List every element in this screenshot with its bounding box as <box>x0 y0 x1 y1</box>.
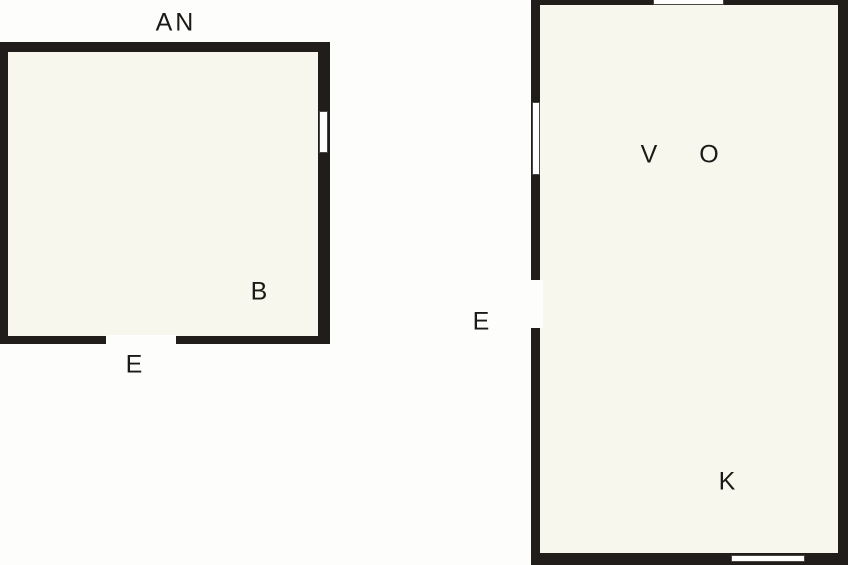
room-an-window-right-wall <box>319 111 328 153</box>
room-an-label-b: B <box>251 280 270 305</box>
room-vok-label-o: O <box>699 143 720 168</box>
room-vok-window-left-wall <box>532 102 540 175</box>
room-vok-entrance-label: E <box>473 310 492 335</box>
room-an-entrance-label: E <box>126 353 145 378</box>
room-vok <box>531 0 848 565</box>
room-an <box>0 42 330 344</box>
room-an-title-label: AN <box>156 11 197 36</box>
room-vok-window-top-wall <box>653 0 724 5</box>
room-vok-label-v: V <box>641 143 660 168</box>
floor-plan: AN B E E V O K <box>0 0 848 565</box>
room-vok-label-k: K <box>719 470 738 495</box>
room-vok-door-opening <box>529 280 543 328</box>
room-an-door-opening <box>106 335 176 346</box>
room-vok-window-bottom-wall <box>731 555 805 562</box>
